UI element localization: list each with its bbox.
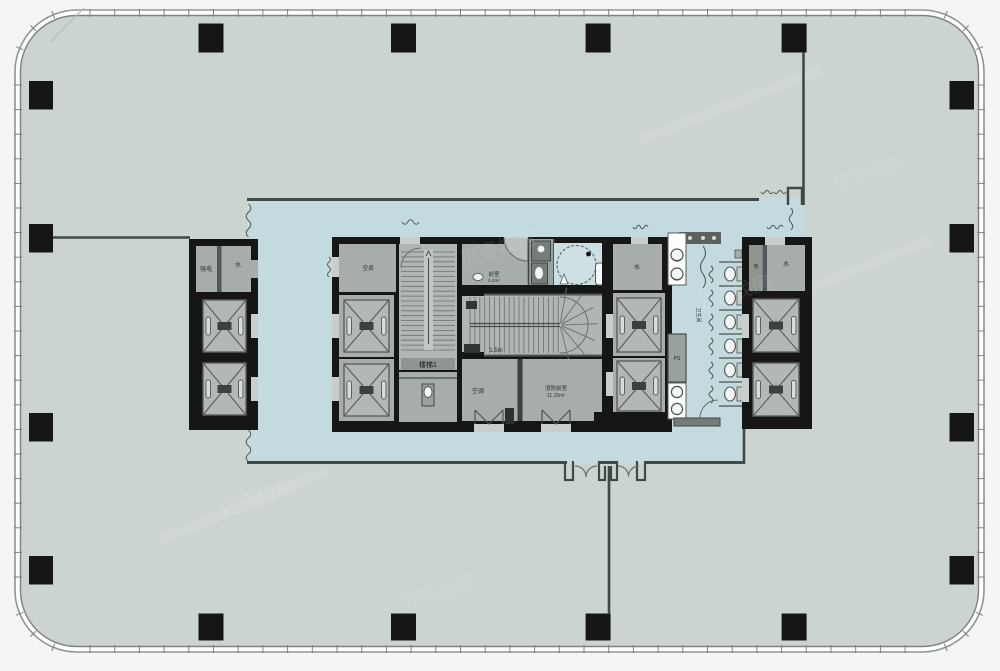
svg-text:空调: 空调 [362, 264, 374, 272]
svg-text:消防前室: 消防前室 [545, 384, 568, 392]
svg-text:水: 水 [235, 261, 241, 269]
svg-text:水: 水 [634, 263, 640, 271]
svg-text:1.5m: 1.5m [489, 348, 502, 354]
svg-text:11.15m²: 11.15m² [547, 393, 565, 399]
svg-text:电: 电 [753, 263, 758, 270]
svg-text:楼梯1: 楼梯1 [419, 360, 437, 369]
svg-text:强电: 强电 [200, 265, 212, 273]
svg-text:空调: 空调 [472, 387, 484, 395]
svg-text:PS: PS [674, 356, 681, 362]
svg-text:前室: 前室 [488, 270, 500, 278]
svg-text:6.2m²: 6.2m² [488, 278, 500, 283]
svg-text:水: 水 [783, 260, 789, 268]
